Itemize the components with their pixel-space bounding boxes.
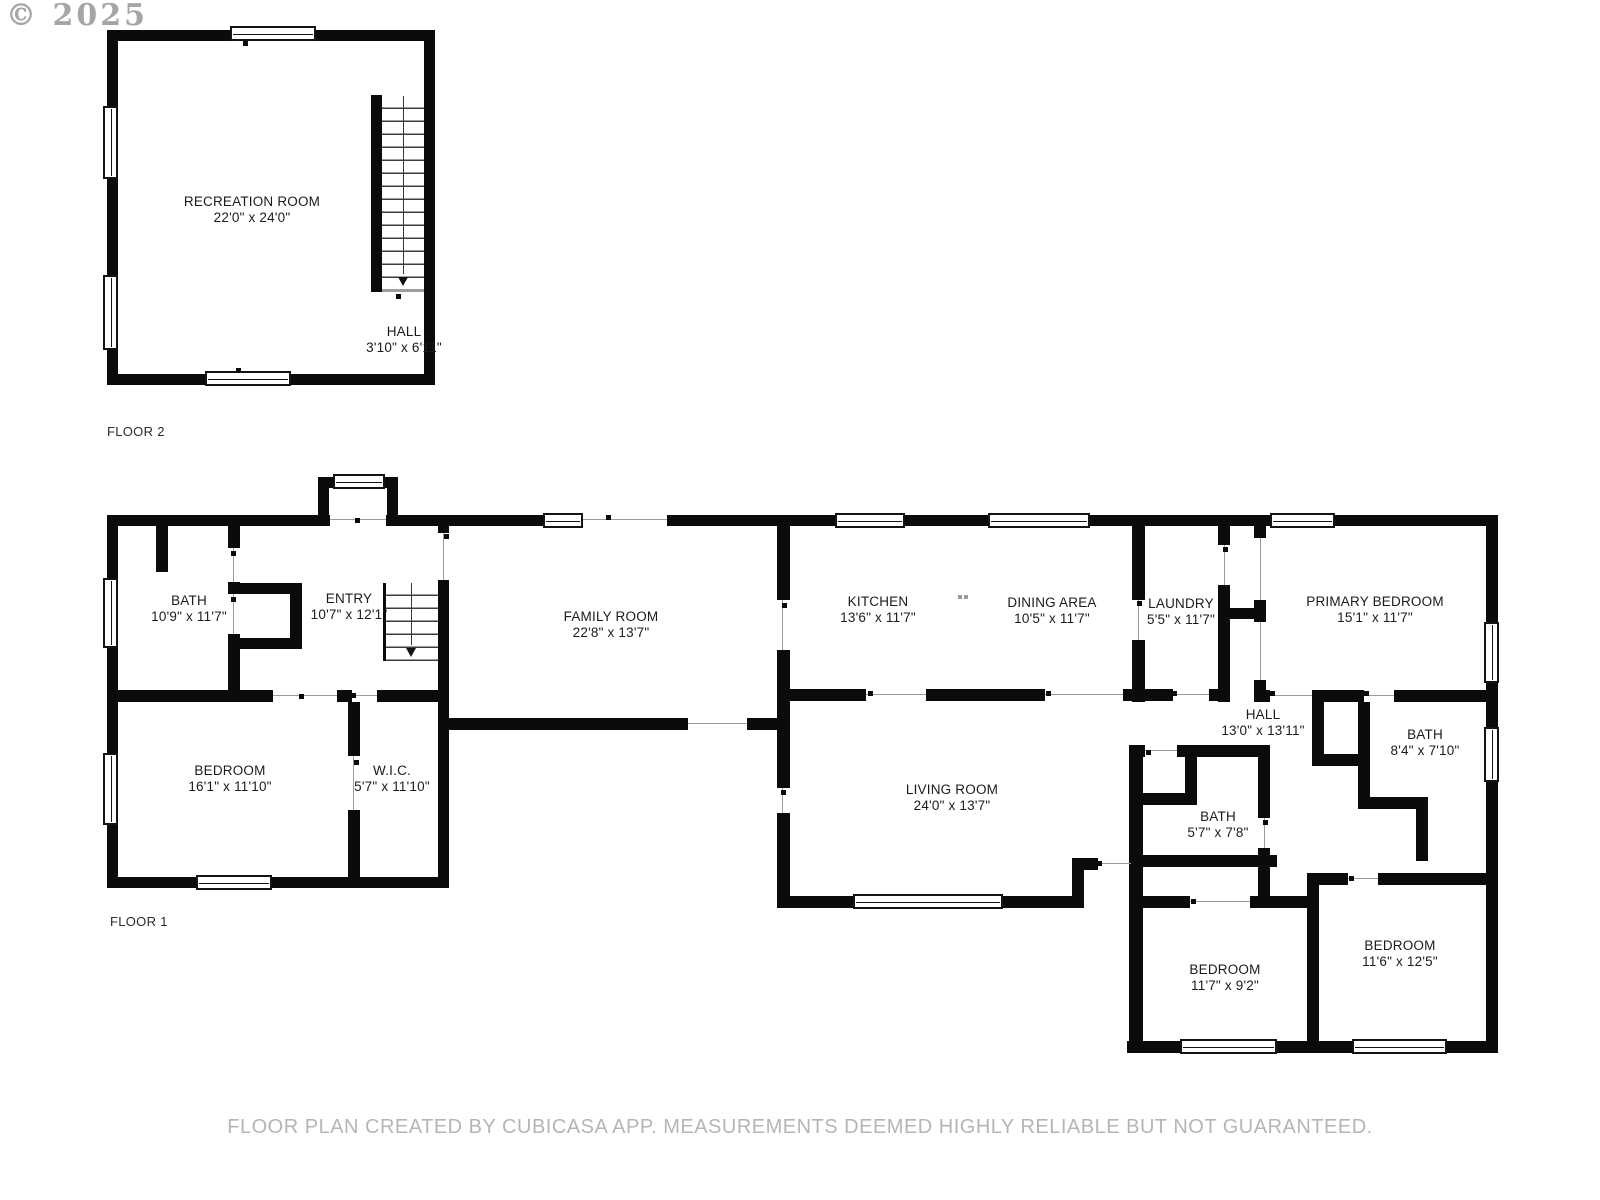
window <box>103 753 118 825</box>
room-label-hall-floor1: HALL 13'0" x 13'11" <box>1221 707 1304 739</box>
room-label-bedroom-b: BEDROOM 11'6" x 12'5" <box>1362 938 1438 970</box>
door-tick <box>1364 691 1369 696</box>
copyright-watermark: © 2025 <box>6 0 148 33</box>
floor2-caption: FLOOR 2 <box>107 424 165 439</box>
wall <box>1090 515 1132 526</box>
window <box>205 371 291 386</box>
wall <box>107 877 449 888</box>
wall <box>1307 873 1319 1041</box>
wall <box>1132 515 1270 526</box>
wall <box>1123 689 1173 701</box>
floorplan-page: © 2025 FLOOR 2 FLOOR 1 RECREATION ROOM 2… <box>0 0 1600 1200</box>
wall <box>905 515 988 526</box>
wall <box>1416 809 1428 861</box>
door-opening <box>1138 600 1139 640</box>
wall <box>777 718 790 788</box>
wall <box>228 526 240 548</box>
wall <box>107 515 330 526</box>
wall <box>1335 515 1486 526</box>
wall <box>337 690 352 702</box>
door-tick <box>351 693 356 698</box>
wall <box>1358 702 1370 809</box>
door-opening <box>1270 695 1312 696</box>
wall <box>449 718 688 730</box>
window <box>1352 1039 1447 1054</box>
staircase-floor2 <box>382 96 424 290</box>
wall <box>1132 640 1145 702</box>
door-opening <box>1045 694 1123 695</box>
wall <box>1132 526 1145 600</box>
door-opening <box>1260 622 1261 680</box>
window <box>103 578 118 648</box>
disclaimer-text: FLOOR PLAN CREATED BY CUBICASA APP. MEAS… <box>0 1116 1600 1139</box>
door-tick <box>1270 691 1275 696</box>
door-tick <box>444 534 449 539</box>
staircase-rail-line <box>411 583 412 645</box>
door-tick <box>1172 691 1177 696</box>
wall <box>1129 745 1143 1053</box>
room-label-recreation-room: RECREATION ROOM 22'0" x 24'0" <box>184 194 320 226</box>
stair-direction-arrow-icon <box>406 648 416 657</box>
wall <box>1218 526 1230 545</box>
wall <box>1486 515 1498 1053</box>
room-label-bath-1: BATH 10'9" x 11'7" <box>151 593 227 625</box>
room-label-bath-3: BATH 5'7" x 7'8" <box>1187 809 1248 841</box>
door-tick <box>782 603 787 608</box>
window <box>196 875 272 890</box>
wall <box>438 580 449 888</box>
wall <box>1143 793 1197 805</box>
room-label-hall-floor2: HALL 3'10" x 6'11" <box>366 324 442 356</box>
wall <box>667 515 790 526</box>
door-opening <box>1173 694 1209 695</box>
door-opening <box>866 694 926 695</box>
room-label-primary-bedroom: PRIMARY BEDROOM 15'1" x 11'7" <box>1306 594 1444 626</box>
door-opening <box>958 595 962 599</box>
wall <box>228 582 240 594</box>
door-opening <box>382 290 424 292</box>
door-tick <box>231 551 236 556</box>
wall <box>1143 896 1190 908</box>
window <box>103 106 118 179</box>
door-opening <box>1190 901 1250 902</box>
wall <box>1394 690 1486 702</box>
door-opening <box>1098 863 1131 864</box>
door-opening <box>688 723 747 724</box>
wall <box>1230 608 1254 619</box>
wall <box>777 526 790 600</box>
door-tick <box>396 294 401 299</box>
wall <box>1358 797 1428 809</box>
wall <box>348 702 360 756</box>
door-tick <box>299 694 304 699</box>
door-opening <box>964 595 968 599</box>
window <box>988 513 1090 528</box>
wall <box>790 515 835 526</box>
window <box>835 513 905 528</box>
door-tick <box>781 790 786 795</box>
wall <box>107 690 273 702</box>
staircase-rail-line <box>403 96 404 274</box>
door-tick <box>355 518 360 523</box>
room-label-bedroom-a: BEDROOM 11'7" x 9'2" <box>1189 962 1260 994</box>
door-opening <box>1260 538 1261 600</box>
window <box>853 894 1003 909</box>
room-label-living-room: LIVING ROOM 24'0" x 13'7" <box>906 782 998 814</box>
door-opening <box>273 695 337 696</box>
window <box>1180 1039 1277 1054</box>
window <box>333 474 385 489</box>
door-tick <box>1046 691 1051 696</box>
floor1-caption: FLOOR 1 <box>110 914 168 929</box>
wall <box>156 526 168 572</box>
wall <box>1003 896 1072 908</box>
wall <box>228 634 240 690</box>
door-tick <box>243 41 248 46</box>
stair-direction-arrow-icon <box>398 277 408 286</box>
door-opening <box>443 533 444 580</box>
door-tick <box>606 515 611 520</box>
wall <box>1131 855 1277 867</box>
wall <box>1378 873 1486 885</box>
wall <box>1254 526 1266 538</box>
wall <box>777 650 790 718</box>
door-tick <box>1263 820 1268 825</box>
wall <box>790 896 853 908</box>
room-label-dining-area: DINING AREA 10'5" x 11'7" <box>1007 595 1096 627</box>
room-label-laundry: LAUNDRY 5'5" x 11'7" <box>1147 596 1215 628</box>
room-label-entry: ENTRY 10'7" x 12'1" <box>311 591 388 623</box>
staircase-floor1 <box>384 583 438 661</box>
room-label-family-room: FAMILY ROOM 22'8" x 13'7" <box>564 609 659 641</box>
window <box>230 26 316 41</box>
wall <box>240 638 302 649</box>
door-tick <box>1097 861 1102 866</box>
wall <box>371 95 382 292</box>
door-tick <box>1146 750 1151 755</box>
wall <box>377 690 449 702</box>
door-tick <box>231 597 236 602</box>
door-tick <box>1349 876 1354 881</box>
wall <box>1084 858 1098 870</box>
door-tick <box>1191 899 1196 904</box>
wall <box>1319 873 1348 885</box>
wall <box>1218 585 1230 702</box>
window <box>1484 622 1499 683</box>
window <box>543 513 583 528</box>
wall <box>1177 745 1270 757</box>
door-tick <box>868 691 873 696</box>
window <box>103 275 118 350</box>
wall <box>1254 600 1266 622</box>
wall <box>926 689 1045 701</box>
wall <box>1258 745 1270 818</box>
door-tick <box>1223 547 1228 552</box>
room-label-bedroom-16: BEDROOM 16'1" x 11'10" <box>188 763 271 795</box>
window <box>1270 513 1335 528</box>
wall <box>438 515 449 533</box>
wall <box>348 810 360 877</box>
wall <box>777 813 790 908</box>
door-tick <box>1137 601 1142 606</box>
wall <box>1254 690 1270 702</box>
room-label-wic: W.I.C. 5'7" x 11'10" <box>354 763 430 795</box>
wall <box>790 689 866 701</box>
wall <box>449 515 543 526</box>
door-tick <box>236 368 241 373</box>
room-label-kitchen: KITCHEN 13'6" x 11'7" <box>840 594 916 626</box>
room-label-bath-2: BATH 8'4" x 7'10" <box>1391 727 1460 759</box>
wall <box>1185 757 1197 793</box>
wall <box>1312 690 1364 702</box>
window <box>1484 727 1499 782</box>
wall <box>1250 896 1308 908</box>
door-opening <box>583 519 667 520</box>
wall <box>1072 858 1084 908</box>
